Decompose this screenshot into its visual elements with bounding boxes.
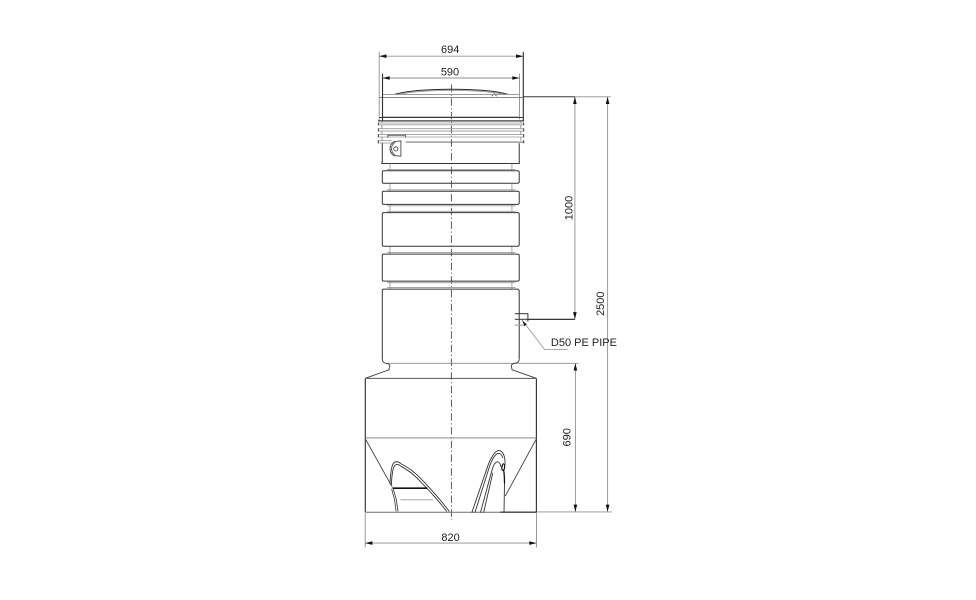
svg-text:690: 690 <box>562 428 574 446</box>
svg-text:1000: 1000 <box>564 196 576 220</box>
svg-text:694: 694 <box>441 44 459 56</box>
svg-text:820: 820 <box>441 532 459 544</box>
svg-text:D50 PE PIPE: D50 PE PIPE <box>551 337 617 349</box>
svg-text:2500: 2500 <box>595 291 607 315</box>
svg-text:590: 590 <box>441 66 459 78</box>
